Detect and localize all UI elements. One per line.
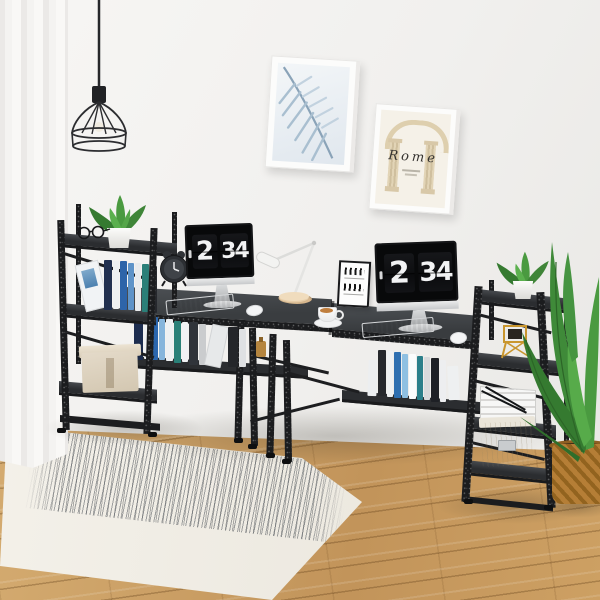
small-bottle bbox=[256, 341, 266, 357]
rome-caption-line-2 bbox=[405, 173, 417, 176]
eyeglasses bbox=[76, 224, 112, 240]
frame-thin-line bbox=[344, 277, 364, 279]
bookend bbox=[367, 360, 377, 396]
book-spine bbox=[440, 360, 446, 402]
rome-plinth-left bbox=[385, 186, 399, 192]
bottle-cap bbox=[259, 337, 263, 342]
flip-clock-minute: 34 bbox=[418, 252, 453, 292]
leveling-foot bbox=[266, 453, 275, 458]
leveling-foot bbox=[148, 432, 157, 437]
monitor-chin bbox=[377, 301, 459, 312]
book-spine bbox=[239, 329, 246, 367]
frame-dash-row bbox=[344, 267, 364, 275]
leveling-foot bbox=[248, 444, 257, 449]
desk-leg bbox=[283, 340, 292, 462]
flip-clock-hour: 2 bbox=[192, 234, 218, 269]
leveling-foot bbox=[544, 505, 553, 510]
rome-art-frame: Rome bbox=[368, 103, 460, 215]
monitor-chin bbox=[186, 277, 254, 286]
book-spine bbox=[394, 352, 401, 398]
book-spine bbox=[189, 322, 198, 365]
clock-card-fragment bbox=[379, 271, 382, 279]
book-spine bbox=[113, 261, 119, 309]
tall-palm-plant bbox=[512, 222, 600, 482]
leveling-foot bbox=[282, 459, 291, 464]
flip-clock-minute: 34 bbox=[220, 233, 249, 268]
frame-dash-row bbox=[344, 283, 364, 291]
clock-card-fragment bbox=[188, 250, 191, 258]
book-spine bbox=[228, 327, 238, 367]
flip-clock-hour: 2 bbox=[384, 253, 415, 293]
magazine-cover-art bbox=[81, 268, 98, 289]
palm-art-frame bbox=[265, 55, 361, 172]
desk-lamp bbox=[254, 236, 326, 308]
book-spine bbox=[417, 356, 423, 400]
storage-box-strap bbox=[106, 358, 114, 388]
book-spine bbox=[409, 354, 416, 399]
book-spine bbox=[159, 319, 165, 360]
mini-desk-frame bbox=[337, 260, 371, 308]
book-spine bbox=[174, 321, 181, 363]
leveling-foot bbox=[464, 499, 473, 504]
rome-plinth-right bbox=[421, 189, 435, 195]
book-spine bbox=[135, 263, 141, 311]
frame-thin-line bbox=[343, 293, 363, 295]
palm-leaf-illustration bbox=[272, 63, 350, 163]
cup-handle bbox=[334, 310, 344, 320]
rome-caption-line-1 bbox=[402, 169, 420, 172]
book-spine bbox=[387, 351, 393, 397]
palm-art-print bbox=[272, 63, 350, 165]
pendant-cage-lamp bbox=[58, 0, 148, 160]
leveling-foot bbox=[234, 438, 243, 443]
bookend bbox=[447, 366, 460, 401]
coffee-surface bbox=[320, 308, 333, 313]
book-spine bbox=[104, 260, 112, 310]
leveling-foot bbox=[57, 428, 66, 433]
desk-cross-brace bbox=[289, 372, 359, 394]
coffee-cup bbox=[314, 303, 342, 327]
book-spine bbox=[128, 263, 134, 310]
book-spine bbox=[402, 354, 408, 398]
right-monitor-screen: 2 34 bbox=[374, 241, 458, 304]
book-spine bbox=[182, 322, 188, 362]
book-spine bbox=[424, 357, 430, 400]
book-spine bbox=[166, 319, 173, 361]
book-spine bbox=[431, 358, 439, 402]
room-photo: Rome bbox=[0, 0, 600, 600]
left-monitor-screen: 2 34 bbox=[185, 223, 255, 279]
rome-art-print: Rome bbox=[375, 110, 451, 209]
book-spine bbox=[378, 350, 386, 396]
book-spine bbox=[120, 261, 127, 310]
